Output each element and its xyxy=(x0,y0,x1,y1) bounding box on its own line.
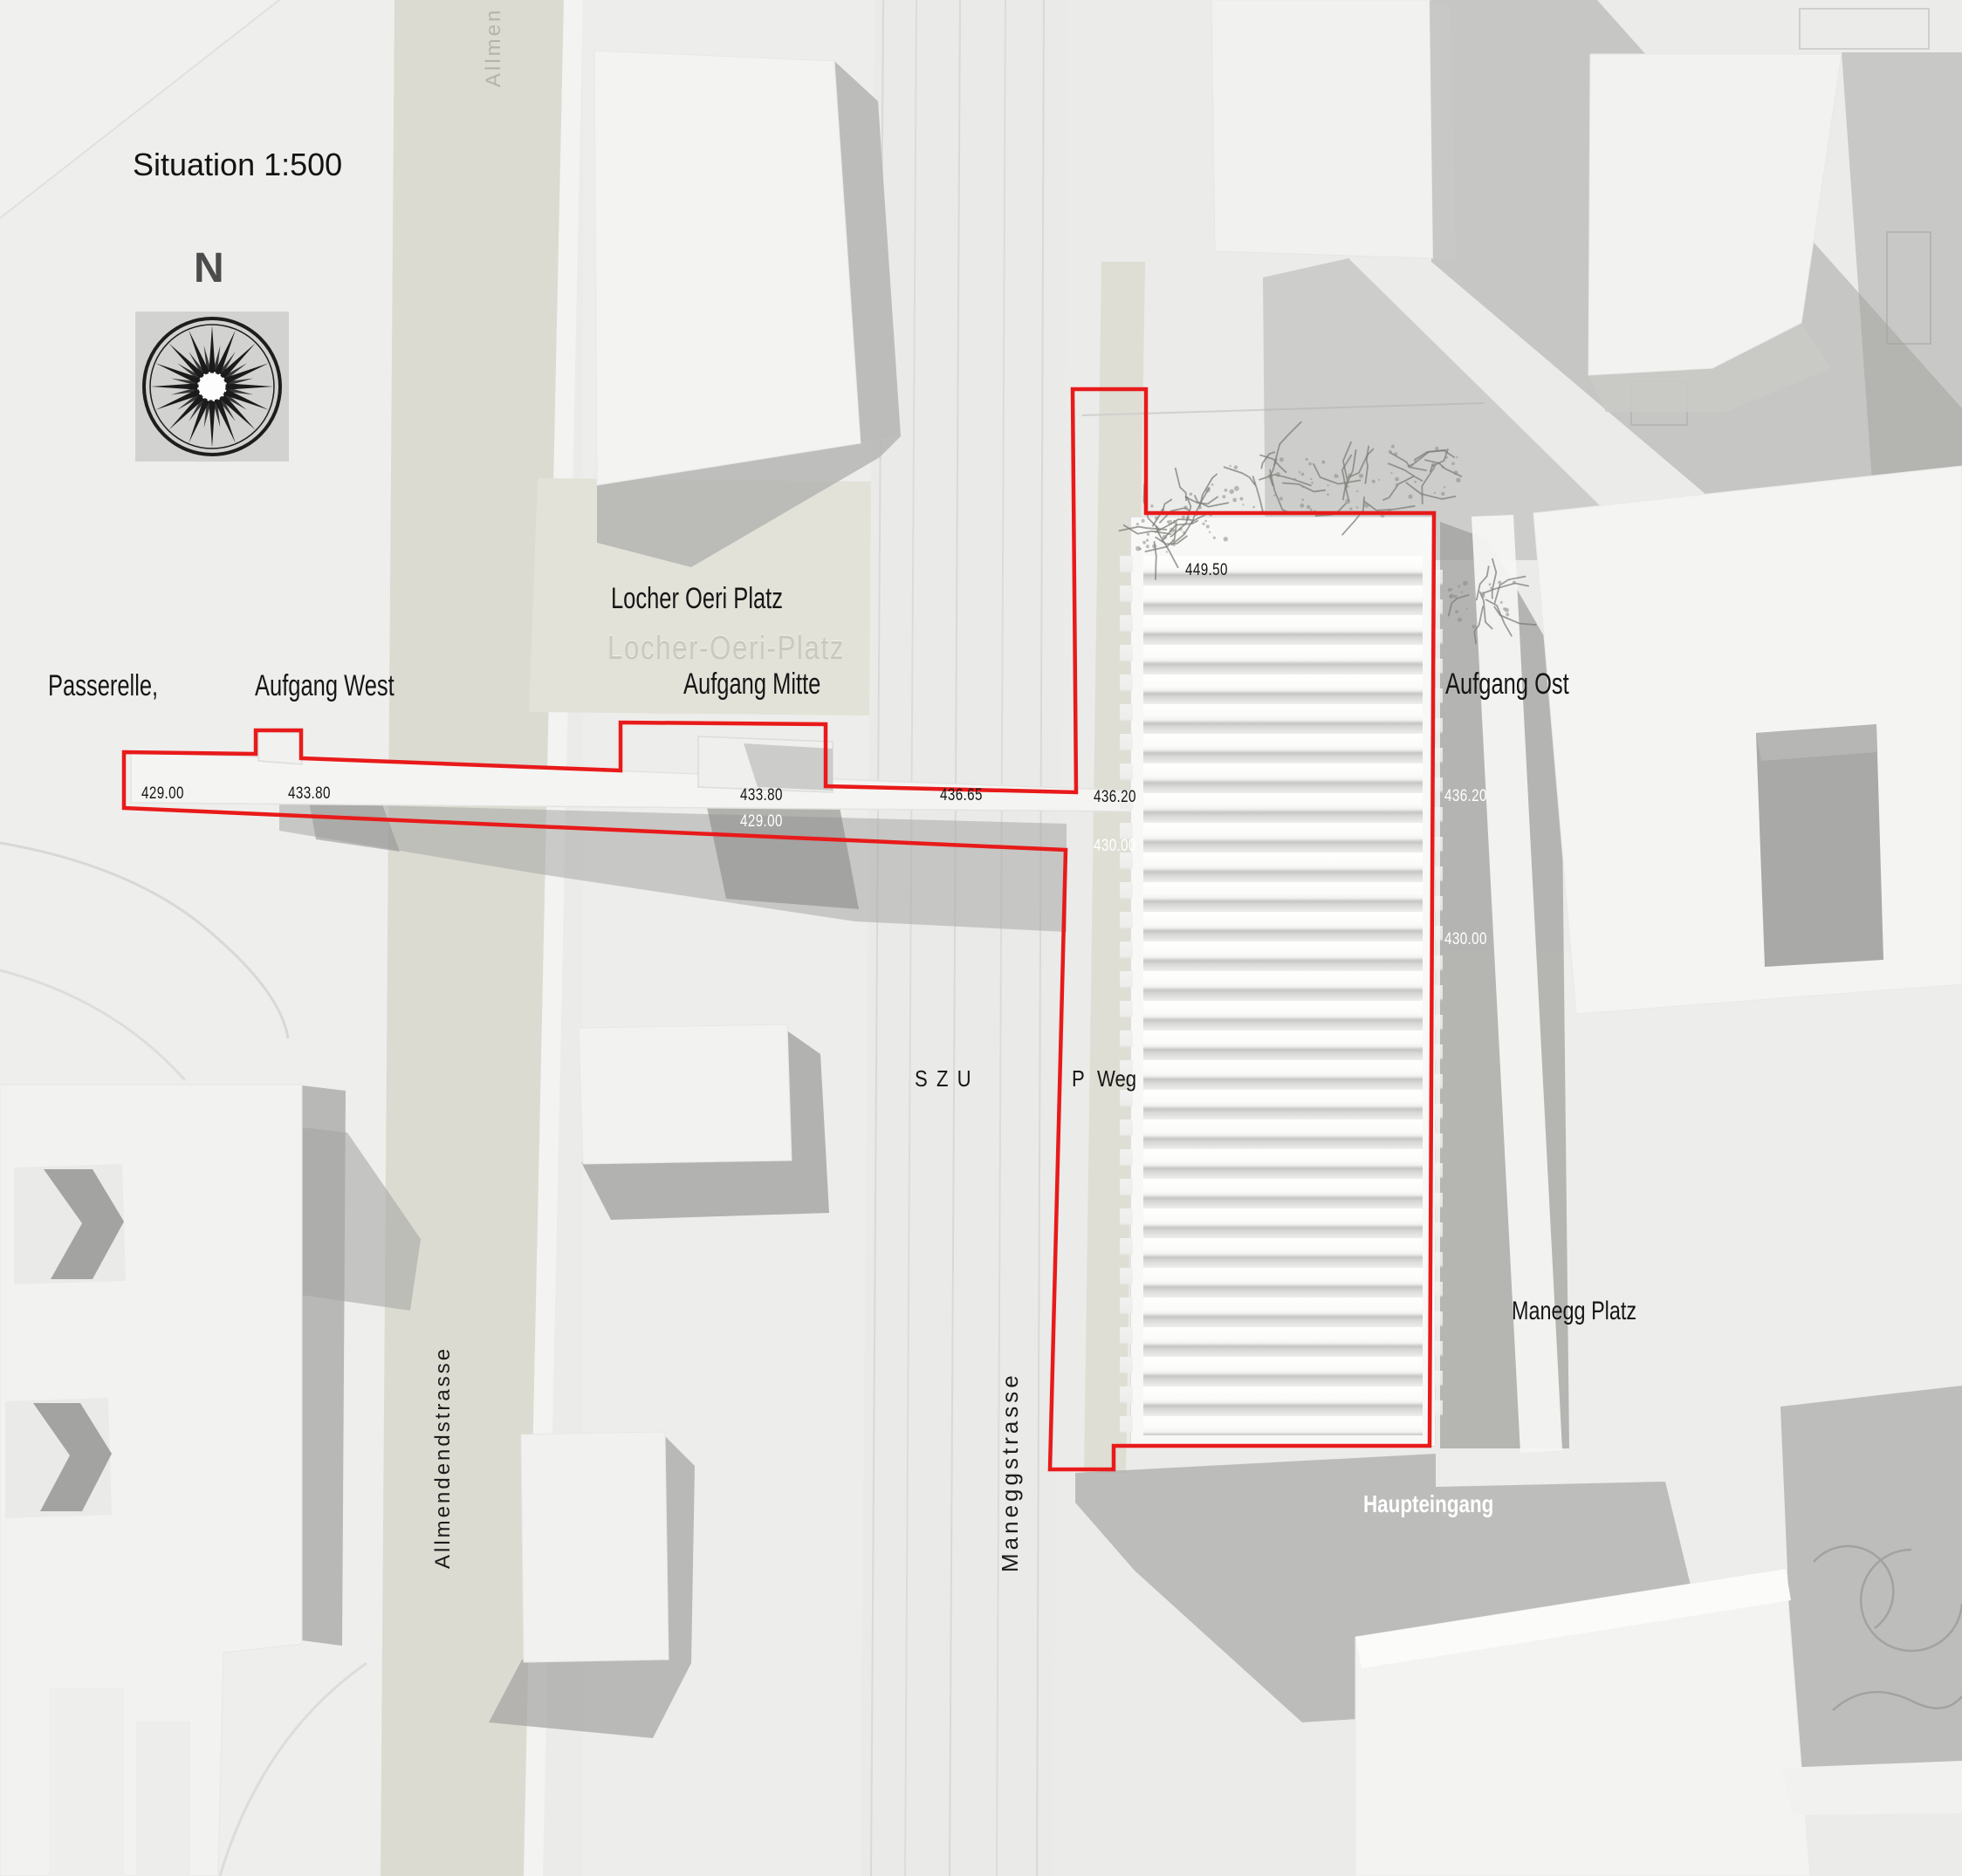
elevation-value: 433.80 xyxy=(740,786,783,805)
label-szu: SZU xyxy=(915,1066,980,1092)
label-haupteingang: Haupteingang xyxy=(1363,1490,1493,1518)
compass-box xyxy=(135,312,289,462)
elevation-value: 436.20 xyxy=(1094,788,1136,807)
site-plan: Situation 1:500 N Passerelle, Aufgang We… xyxy=(0,0,1962,1876)
elevation-value: 449.50 xyxy=(1185,561,1228,580)
label-manegg-platz: Manegg Platz xyxy=(1512,1297,1636,1325)
label-aufgang-ost: Aufgang Ost xyxy=(1445,668,1569,701)
project-perimeter-red-outline xyxy=(124,389,1434,1469)
street-label-allmendendstrasse: Allmendendstrasse xyxy=(431,1346,456,1569)
label-passerelle: Passerelle, xyxy=(48,670,158,702)
trees-layer xyxy=(1119,421,1537,644)
elevation-value: 436.65 xyxy=(940,786,983,805)
elevation-value: 429.00 xyxy=(141,784,184,804)
elevation-value: 433.80 xyxy=(288,784,331,804)
north-label: N xyxy=(194,244,224,292)
annotation-layer xyxy=(0,0,1962,1876)
label-aufgang-mitte: Aufgang Mitte xyxy=(683,668,820,701)
label-aufgang-west: Aufgang West xyxy=(255,670,394,702)
page-title: Situation 1:500 xyxy=(133,147,342,183)
elevation-value: 430.00 xyxy=(1094,837,1136,856)
label-locher-oeri-platz: Locher Oeri Platz xyxy=(611,583,783,615)
elevation-value: 429.00 xyxy=(740,812,783,832)
elevation-value: 436.20 xyxy=(1444,787,1487,806)
compass-rose-svg xyxy=(135,312,289,462)
label-p-weg: P Weg xyxy=(1072,1066,1136,1092)
street-label-maneggstrasse: Maneggstrasse xyxy=(997,1372,1024,1572)
elevation-value: 430.00 xyxy=(1444,930,1487,949)
street-label-allmend-partial: Allmen xyxy=(482,8,506,87)
engraved-locher-oeri-platz: Locher-Oeri-Platz xyxy=(607,630,845,668)
